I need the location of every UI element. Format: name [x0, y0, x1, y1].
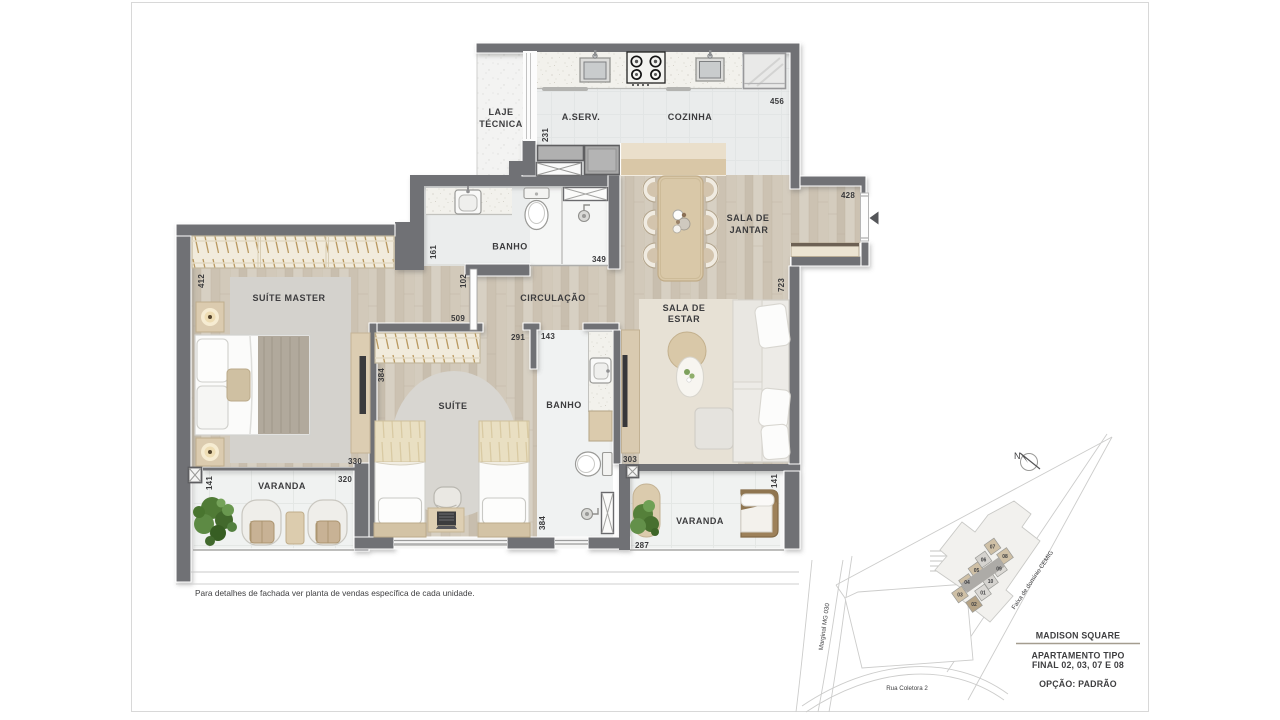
svg-text:330: 330 — [348, 457, 362, 466]
svg-text:08: 08 — [1002, 554, 1008, 560]
svg-text:04: 04 — [964, 580, 970, 586]
svg-text:SUÍTE: SUÍTE — [438, 401, 467, 411]
svg-text:ESTAR: ESTAR — [668, 314, 700, 324]
svg-text:03: 03 — [957, 593, 963, 599]
svg-text:VARANDA: VARANDA — [258, 481, 306, 491]
svg-text:N: N — [1014, 451, 1021, 461]
svg-text:291: 291 — [511, 333, 525, 342]
svg-text:JANTAR: JANTAR — [730, 225, 769, 235]
svg-text:303: 303 — [623, 455, 637, 464]
svg-text:01: 01 — [980, 591, 986, 597]
svg-text:SUÍTE MASTER: SUÍTE MASTER — [252, 293, 325, 303]
svg-text:OPÇÃO: PADRÃO: OPÇÃO: PADRÃO — [1039, 679, 1117, 689]
svg-text:FINAL 02, 03, 07 E 08: FINAL 02, 03, 07 E 08 — [1032, 660, 1124, 670]
svg-text:102: 102 — [459, 274, 468, 288]
svg-text:A.SERV.: A.SERV. — [562, 112, 601, 122]
svg-text:161: 161 — [429, 245, 438, 259]
svg-text:Rua Coletora 2: Rua Coletora 2 — [886, 685, 928, 692]
svg-text:141: 141 — [770, 474, 779, 488]
svg-text:02: 02 — [971, 602, 977, 608]
svg-text:VARANDA: VARANDA — [676, 516, 724, 526]
svg-text:06: 06 — [981, 558, 987, 564]
svg-text:Para detalhes de fachada ver p: Para detalhes de fachada ver planta de v… — [195, 588, 475, 598]
svg-text:723: 723 — [777, 278, 786, 292]
svg-text:428: 428 — [841, 191, 855, 200]
svg-text:412: 412 — [197, 274, 206, 288]
svg-text:TÉCNICA: TÉCNICA — [479, 119, 523, 129]
svg-text:SALA DE: SALA DE — [727, 213, 770, 223]
svg-text:COZINHA: COZINHA — [668, 112, 713, 122]
svg-text:APARTAMENTO TIPO: APARTAMENTO TIPO — [1031, 651, 1124, 661]
svg-text:349: 349 — [592, 255, 606, 264]
svg-text:LAJE: LAJE — [488, 107, 513, 117]
svg-text:384: 384 — [377, 368, 386, 382]
svg-text:143: 143 — [541, 332, 555, 341]
svg-text:07: 07 — [990, 545, 996, 551]
svg-text:MADISON SQUARE: MADISON SQUARE — [1036, 631, 1120, 641]
svg-text:10: 10 — [988, 579, 994, 585]
svg-text:05: 05 — [974, 568, 980, 574]
svg-text:287: 287 — [635, 541, 649, 550]
svg-text:09: 09 — [996, 567, 1002, 573]
svg-text:141: 141 — [205, 476, 214, 490]
svg-text:456: 456 — [770, 97, 784, 106]
svg-text:320: 320 — [338, 475, 352, 484]
svg-text:384: 384 — [538, 516, 547, 530]
svg-text:SALA DE: SALA DE — [663, 303, 706, 313]
svg-text:BANHO: BANHO — [546, 400, 582, 410]
svg-text:BANHO: BANHO — [492, 242, 528, 252]
svg-text:509: 509 — [451, 314, 465, 323]
svg-text:CIRCULAÇÃO: CIRCULAÇÃO — [520, 293, 586, 303]
svg-text:231: 231 — [541, 128, 550, 142]
